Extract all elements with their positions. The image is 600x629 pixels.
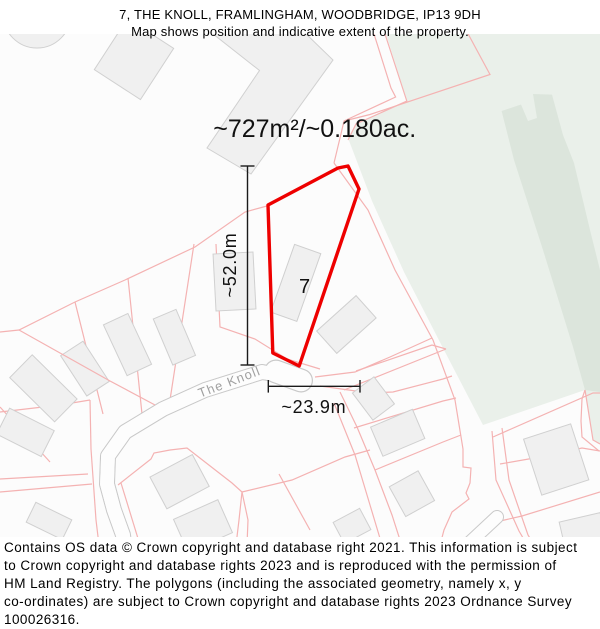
svg-text:7: 7 [299,276,310,298]
svg-text:~727m²/~0.180ac.: ~727m²/~0.180ac. [213,115,416,143]
svg-text:~52.0m: ~52.0m [220,232,240,297]
svg-text:~23.9m: ~23.9m [281,397,346,417]
